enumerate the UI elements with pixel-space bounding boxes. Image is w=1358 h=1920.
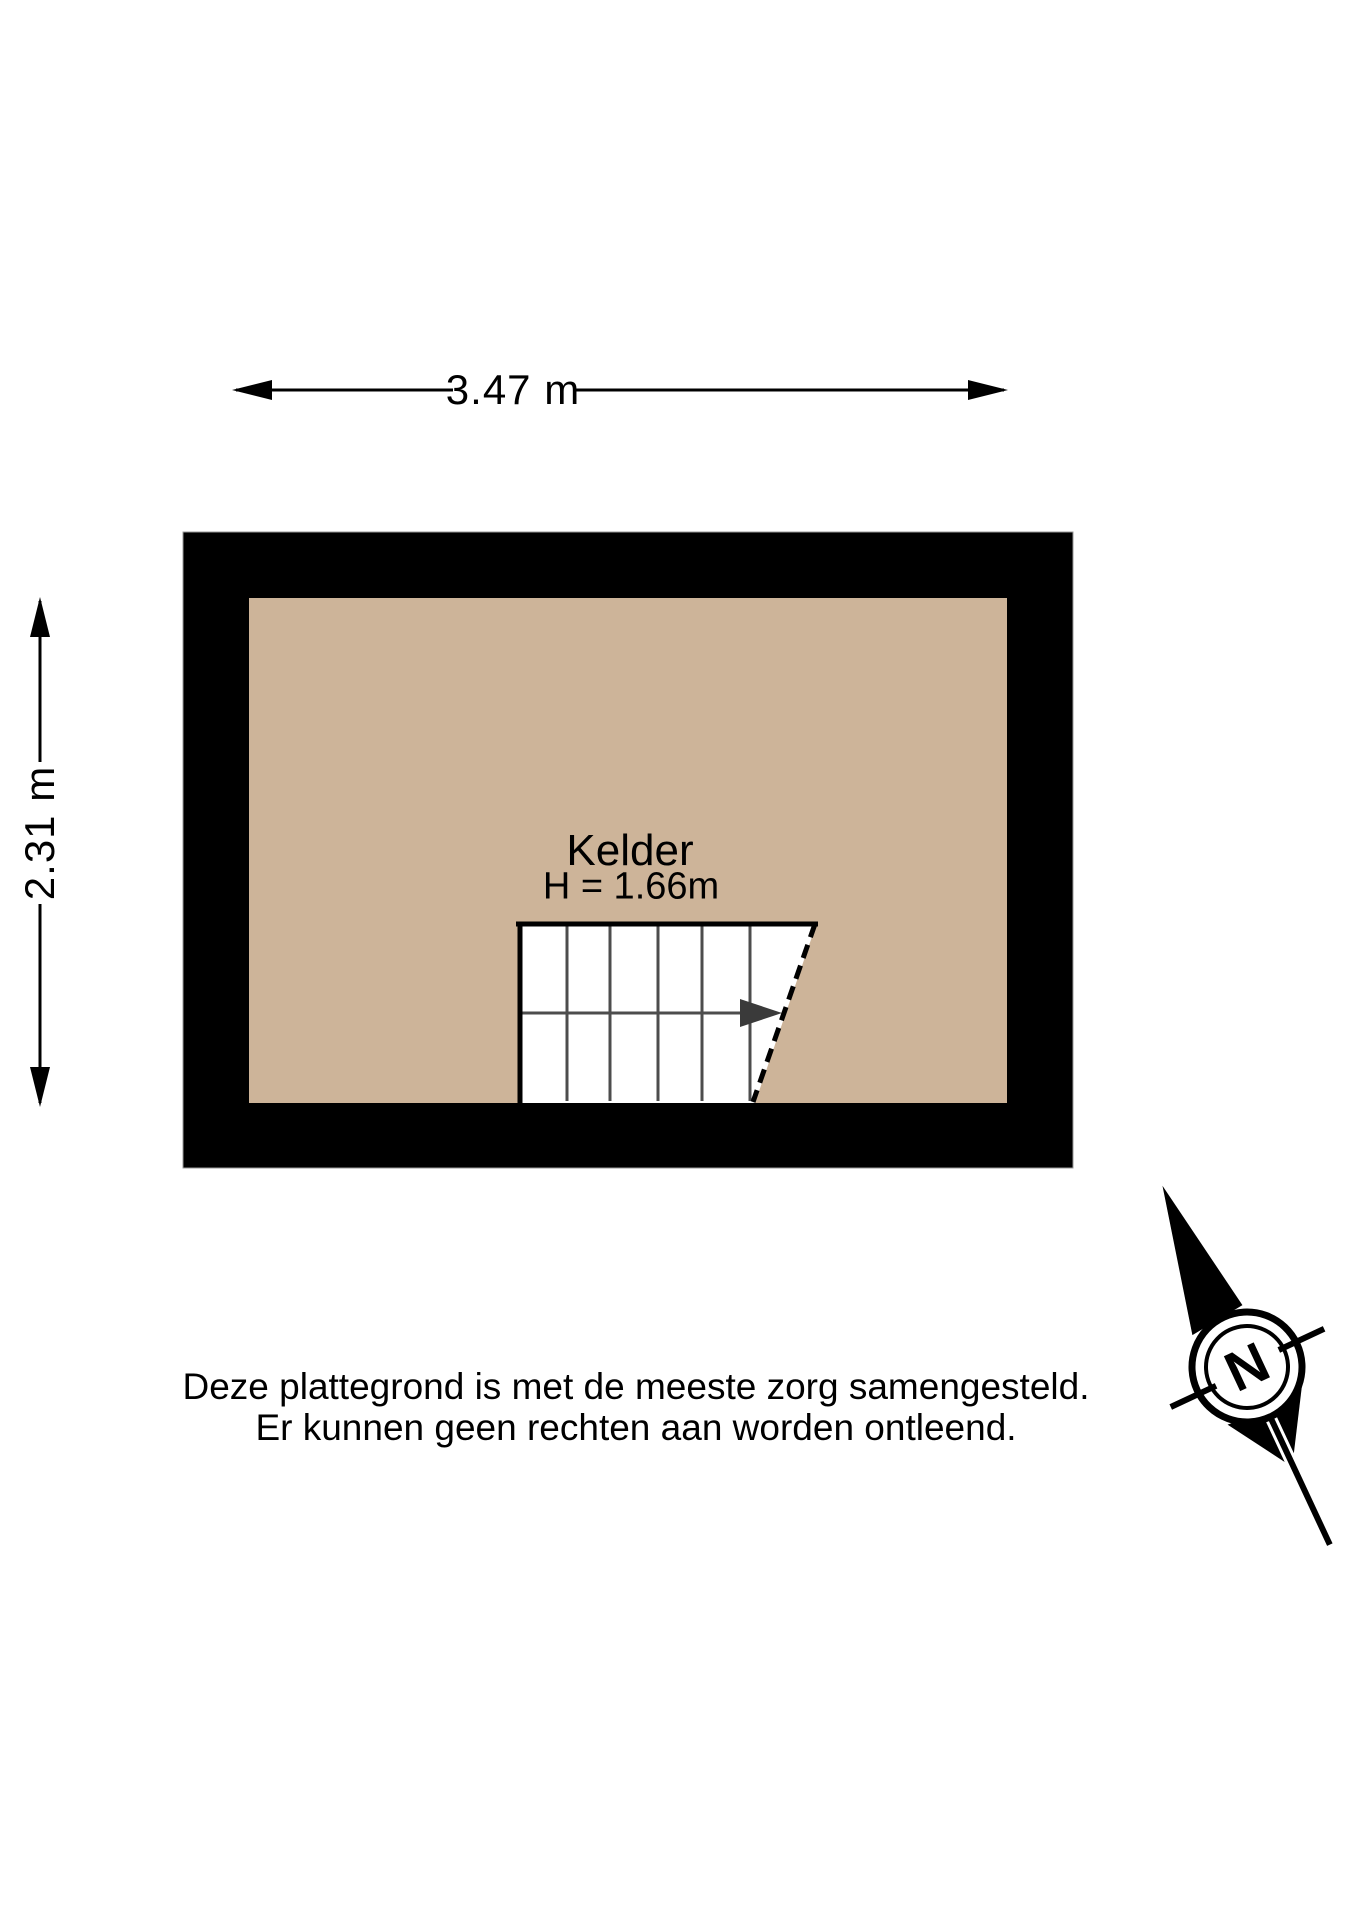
disclaimer-text: Deze plattegrond is met de meeste zorg s… [183,1366,1090,1448]
width-arrowhead-right-icon [968,380,1008,400]
height-arrowhead-bottom-icon [30,1067,50,1107]
compass-rose: N [1085,1149,1358,1581]
floorplan-drawing: N [0,0,1358,1920]
height-dimension-label: 2.31 m [16,766,64,900]
compass-needle-icon [1130,1176,1245,1335]
width-arrowhead-left-icon [232,380,272,400]
room-height-label: H = 1.66m [543,866,719,909]
floorplan-page: N 3.47 m 2.31 m Kelder H = 1.66m Deze pl… [0,0,1358,1920]
width-dimension-label: 3.47 m [446,366,580,414]
disclaimer-line1: Deze plattegrond is met de meeste zorg s… [183,1366,1090,1407]
width-dimension-arrow [232,380,1008,400]
height-arrowhead-top-icon [30,597,50,637]
disclaimer-line2: Er kunnen geen rechten aan worden ontlee… [183,1407,1090,1448]
